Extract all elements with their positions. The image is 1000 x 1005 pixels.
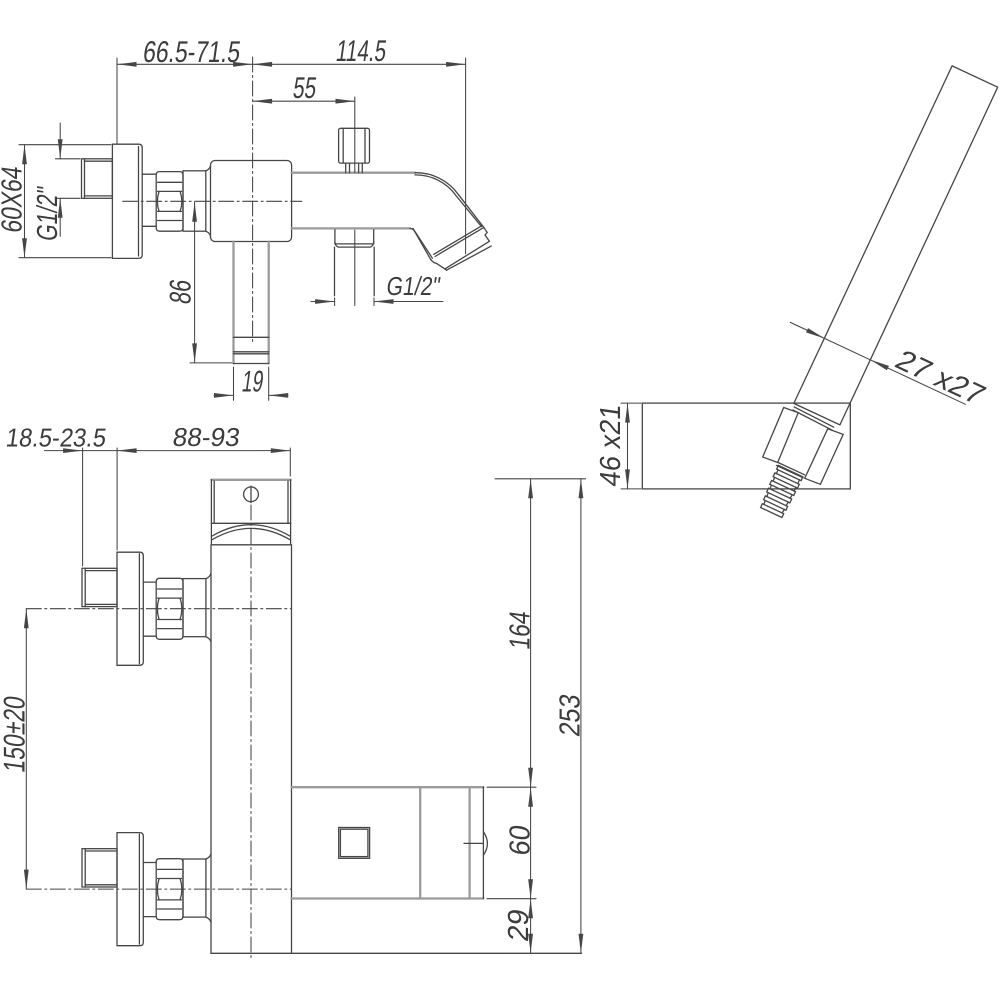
svg-text:88-93: 88-93	[171, 422, 242, 452]
svg-text:253: 253	[555, 692, 587, 738]
svg-text:18.5-23.5: 18.5-23.5	[4, 423, 108, 453]
svg-text:29: 29	[503, 907, 535, 943]
svg-text:86: 86	[165, 277, 198, 306]
svg-text:55: 55	[291, 72, 319, 105]
svg-text:60X64: 60X64	[0, 164, 28, 234]
svg-text:114.5: 114.5	[334, 35, 389, 68]
svg-text:G1/2": G1/2"	[385, 271, 443, 301]
svg-text:164: 164	[505, 609, 537, 651]
svg-text:66.5-71.5: 66.5-71.5	[141, 36, 243, 69]
svg-text:46 x21: 46 x21	[595, 402, 627, 488]
svg-text:60: 60	[505, 823, 537, 857]
svg-text:150±20: 150±20	[0, 694, 31, 775]
svg-text:G1/2": G1/2"	[32, 185, 64, 243]
